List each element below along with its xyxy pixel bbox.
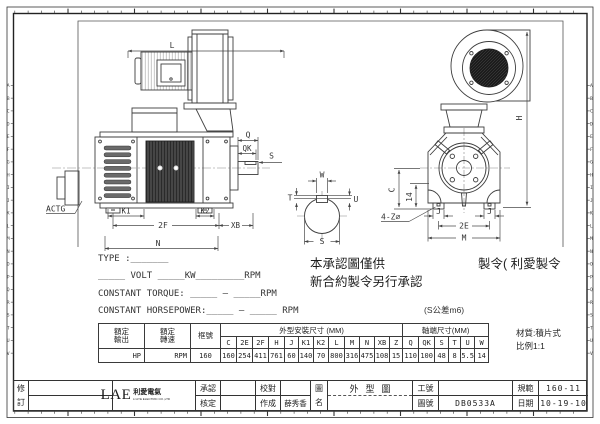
zone-letter-right: G xyxy=(590,160,593,166)
verify-label: 核定 xyxy=(196,396,220,410)
zone-letter-left: P xyxy=(7,274,10,280)
drawing-name: 外型圖 xyxy=(328,381,412,396)
flange-bolt xyxy=(474,154,478,158)
shaft-dims-header: 軸端尺寸(MM) xyxy=(403,324,489,337)
zone-letter-right: R xyxy=(590,300,593,306)
dim-value-cell: 411 xyxy=(253,349,269,363)
dim-label-k1: K1 xyxy=(121,207,130,216)
dim-label-h: H xyxy=(515,115,524,120)
zone-letter-left: E xyxy=(7,134,10,140)
company-logo: LAE 利愛電氣 LI AYE ELECTRIC CO.,LTD xyxy=(113,381,196,410)
zone-letter-right: K xyxy=(590,211,593,217)
workno-drawno-values: DB0533A xyxy=(439,381,513,410)
zone-letter-right: B xyxy=(590,96,593,102)
shaft-circle xyxy=(305,199,340,234)
zone-letter-right: S xyxy=(590,313,593,319)
zone-letter-right: H xyxy=(590,172,593,178)
dim-label-s-side: S xyxy=(269,152,274,161)
zone-letter-left: Q xyxy=(7,287,10,293)
dim-letter-cell: N xyxy=(360,337,375,349)
drawing-no-label: 圖號 xyxy=(413,396,438,410)
zone-letter-right: P xyxy=(590,274,593,280)
col-rated-speed: 額定轉速 xyxy=(145,324,191,349)
zone-letter-right: C xyxy=(590,109,593,115)
speed-unit: RPM xyxy=(145,349,191,363)
revision-label-cell: 修訂 xyxy=(14,381,29,410)
dim-letter-cell: U xyxy=(461,337,475,349)
zone-letter-left: O xyxy=(7,262,10,268)
col-frame-no: 框號 xyxy=(191,324,221,349)
dim-label-xb: XB xyxy=(231,221,241,230)
proof-label: 校對 xyxy=(256,381,280,396)
frame-value: 160 xyxy=(191,349,221,363)
zone-letter-left: V xyxy=(7,351,10,357)
approval-note-line1-left: 本承認圖僅供 xyxy=(310,253,385,272)
outline-dims-header: 外型安裝尺寸 (MM) xyxy=(221,324,403,337)
dim-label-j-right: J xyxy=(487,207,492,216)
date-value: 10-19-10 xyxy=(539,396,588,410)
dim-letter-cell: W xyxy=(475,337,489,349)
dim-label-s-section: S xyxy=(320,237,325,246)
dim-label-4-z-holes: 4-Z∅ xyxy=(381,213,400,222)
material-note: 材質:積片式 xyxy=(516,327,561,340)
drawing-name-label-cell: 圖名 xyxy=(311,381,328,410)
inlet-mesh xyxy=(470,49,508,87)
zone-letter-right: F xyxy=(590,147,593,153)
dim-value-row: HP RPM 160 16025441176160140708003164751… xyxy=(99,349,489,363)
output-unit: HP xyxy=(99,349,145,363)
zone-letter-right: E xyxy=(590,134,593,140)
work-no-value xyxy=(439,381,512,396)
bolt xyxy=(99,140,102,143)
dim-letter-cell: QK xyxy=(419,337,435,349)
approval-note-line2: 新合約製令另行承認 xyxy=(310,271,423,290)
dim-label-k2: K2 xyxy=(200,207,209,216)
fan-motor-cap xyxy=(135,58,141,84)
zone-letter-left: H xyxy=(7,172,10,178)
zone-letter-right: A xyxy=(590,83,593,89)
spec-label: 規範 xyxy=(513,381,538,396)
logo-subtext: LI AYE ELECTRIC CO.,LTD xyxy=(133,397,170,401)
dim-value-cell: 48 xyxy=(435,349,449,363)
bolt xyxy=(206,140,209,143)
dim-letter-cell: 2E xyxy=(237,337,253,349)
stator-fins xyxy=(146,141,194,202)
dim-value-cell: 800 xyxy=(329,349,345,363)
dim-value-cell: 475 xyxy=(360,349,375,363)
bolt xyxy=(132,140,135,143)
dim-value-cell: 160 xyxy=(221,349,237,363)
flange-bolt xyxy=(474,178,478,182)
zone-letter-left: C xyxy=(7,109,10,115)
foot-slot xyxy=(111,208,115,211)
lifting-hole xyxy=(174,166,178,170)
logo-lae-text: LAE xyxy=(101,387,132,404)
scale-note: 比例1:1 xyxy=(516,340,561,353)
dim-label-actg: ACTG xyxy=(46,205,65,214)
zone-letter-left: F xyxy=(7,147,10,153)
dim-label-t: T xyxy=(288,194,293,203)
dim-label-14: 14 xyxy=(405,192,414,202)
dim-letter-cell: J xyxy=(285,337,299,349)
dim-letter-cell: H xyxy=(269,337,285,349)
proof-made-values: 薛秀香 xyxy=(281,381,311,410)
foot-hole xyxy=(437,204,440,207)
zone-letter-left: A xyxy=(7,83,10,89)
title-block: 修訂 LAE 利愛電氣 LI AYE ELECTRIC CO.,LTD 承認 核… xyxy=(13,380,587,411)
dim-value-cell: 316 xyxy=(345,349,360,363)
dim-value-cell: 70 xyxy=(314,349,329,363)
dim-letter-cell: K2 xyxy=(314,337,329,349)
drawing-name-cell: 外型圖 xyxy=(328,381,413,410)
dim-label-2e: 2E xyxy=(459,222,469,231)
spec-torque-line: CONSTANT TORQUE: _____ — _____RPM xyxy=(98,286,298,303)
zone-letter-left: I xyxy=(7,185,10,191)
dim-value-cell: 8 xyxy=(449,349,461,363)
dim-label-2f: 2F xyxy=(158,221,168,230)
approve-value xyxy=(221,381,255,396)
dimension-table: 額定輸出 額定轉速 框號 外型安裝尺寸 (MM) 軸端尺寸(MM) C2E2FH… xyxy=(98,323,489,363)
zone-letter-left: T xyxy=(7,325,10,331)
dim-letter-cell: Q xyxy=(403,337,419,349)
spec-date-values: 160-11 10-19-10 xyxy=(539,381,588,410)
zone-letter-left: U xyxy=(7,338,10,344)
foot-hole xyxy=(488,204,491,207)
bolt xyxy=(225,197,228,200)
drawing-sheet: AABBCCDDEEFFGGHHIIJJKKLLMMNNOOPPQQRRSSTT… xyxy=(0,0,600,424)
dim-value-cell: 5.5 xyxy=(461,349,475,363)
dim-label-c: C xyxy=(388,187,397,192)
dim-letter-cell: M xyxy=(345,337,360,349)
spec-horsepower-line: CONSTANT HORSEPOWER:_____ — _____ RPM xyxy=(98,303,298,320)
dim-letter-cell: 2F xyxy=(253,337,269,349)
zone-letter-right: T xyxy=(590,325,593,331)
zone-letter-left: S xyxy=(7,313,10,319)
dim-value-cell: 108 xyxy=(375,349,390,363)
dim-value-cell: 254 xyxy=(237,349,253,363)
zone-letter-left: R xyxy=(7,300,10,306)
dim-label-w: W xyxy=(320,171,325,180)
made-label: 作成 xyxy=(256,396,280,410)
shaft-key xyxy=(245,162,256,165)
front-view xyxy=(420,30,530,213)
dim-letter-cell: L xyxy=(329,337,345,349)
dim-label-n: N xyxy=(156,239,161,248)
shaft-section-view xyxy=(294,191,352,241)
dim-value-cell: 761 xyxy=(269,349,285,363)
drawing-no-value: DB0533A xyxy=(439,396,512,410)
spec-date-labels: 規範 日期 xyxy=(513,381,539,410)
dim-value-cell: 15 xyxy=(390,349,403,363)
dim-label-m: M xyxy=(462,234,467,243)
dim-label-j-left: J xyxy=(436,207,441,216)
approve-label: 承認 xyxy=(196,381,220,396)
workno-drawno-labels: 工號 圖號 xyxy=(413,381,439,410)
side-view xyxy=(52,30,270,213)
bolt xyxy=(225,140,228,143)
spec-value: 160-11 xyxy=(539,381,588,396)
bolt xyxy=(206,197,209,200)
dim-value-cell: 140 xyxy=(299,349,314,363)
zone-letter-right: O xyxy=(590,262,593,268)
bolt xyxy=(99,197,102,200)
drawing-name-empty xyxy=(328,396,412,410)
foot-arc-left xyxy=(428,190,441,203)
shaft-tolerance-note: (S公差m6) xyxy=(424,304,464,316)
zone-letter-left: D xyxy=(7,121,10,127)
zone-letter-right: D xyxy=(590,121,593,127)
blower-tab xyxy=(228,37,233,100)
work-no-label: 工號 xyxy=(413,381,438,396)
zone-letter-right: M xyxy=(590,236,593,242)
flange-bolt xyxy=(450,154,454,158)
zone-letter-left: M xyxy=(7,236,10,242)
dim-value-cell: 110 xyxy=(403,349,419,363)
motor-bottom-lip xyxy=(100,203,233,208)
dim-label-l: L xyxy=(170,41,175,50)
terminal-box xyxy=(132,108,177,132)
zone-letter-left: K xyxy=(7,211,10,217)
zone-letter-right: V xyxy=(590,351,593,357)
verify-value xyxy=(221,396,255,410)
zone-letter-right: U xyxy=(590,338,593,344)
col-rated-output: 額定輸出 xyxy=(99,324,145,349)
lifting-hole xyxy=(158,166,162,170)
zone-letter-left: B xyxy=(7,96,10,102)
spec-volt-line: _____ VOLT _____KW_________RPM xyxy=(98,268,298,285)
foot-arc-right xyxy=(487,190,500,203)
revision-row-1 xyxy=(29,381,112,396)
dim-value-cell: 100 xyxy=(419,349,435,363)
bolt xyxy=(132,197,135,200)
blower-duct xyxy=(196,109,233,131)
dim-label-q: Q xyxy=(246,131,251,140)
zone-letter-left: G xyxy=(7,160,10,166)
dim-letter-cell: K1 xyxy=(299,337,314,349)
approve-verify-values xyxy=(221,381,256,410)
proof-made-labels: 校對 作成 xyxy=(256,381,281,410)
motor-top-lip xyxy=(100,132,233,137)
zone-letter-right: N xyxy=(590,249,593,255)
spec-type-line: TYPE :_______ xyxy=(98,251,298,268)
zone-letter-left: L xyxy=(7,223,10,229)
material-scale-note: 材質:積片式 比例1:1 xyxy=(516,327,561,353)
revision-row-2 xyxy=(29,396,112,410)
flange-bolt xyxy=(450,178,454,182)
zone-letter-right: L xyxy=(590,223,593,229)
zone-letter-right: J xyxy=(590,198,593,204)
spec-lines: TYPE :_______ _____ VOLT _____KW________… xyxy=(98,251,298,321)
zone-letter-right: I xyxy=(590,185,593,191)
tach-flange xyxy=(65,171,79,205)
approve-verify-labels: 承認 核定 xyxy=(196,381,221,410)
blower-flange xyxy=(184,103,236,109)
proof-value xyxy=(281,381,310,396)
zone-markers: AABBCCDDEEFFGGHHIIJJKKLLMMNNOOPPQQRRSSTT… xyxy=(7,83,593,357)
made-by-name: 薛秀香 xyxy=(281,396,310,410)
vent-grille xyxy=(104,146,131,198)
dim-value-cell: 60 xyxy=(285,349,299,363)
dim-letter-cell: T xyxy=(449,337,461,349)
date-label: 日期 xyxy=(513,396,538,410)
duct-trapezoid xyxy=(446,110,482,127)
dim-value-cell: 14 xyxy=(475,349,489,363)
duct-flange-top xyxy=(441,104,487,110)
zone-letter-left: N xyxy=(7,249,10,255)
dim-letter-cell: S xyxy=(435,337,449,349)
tach-cap xyxy=(57,177,65,199)
dim-letter-cell: Z xyxy=(390,337,403,349)
dim-letter-cell: XB xyxy=(375,337,390,349)
dim-letter-cell: C xyxy=(221,337,237,349)
zone-letter-left: J xyxy=(7,198,10,204)
dim-label-qk: QK xyxy=(242,144,252,153)
zone-letter-right: Q xyxy=(590,287,593,293)
approval-note-line1-right: 製令( 利愛製令 xyxy=(478,253,561,272)
dim-label-u: U xyxy=(354,195,359,204)
